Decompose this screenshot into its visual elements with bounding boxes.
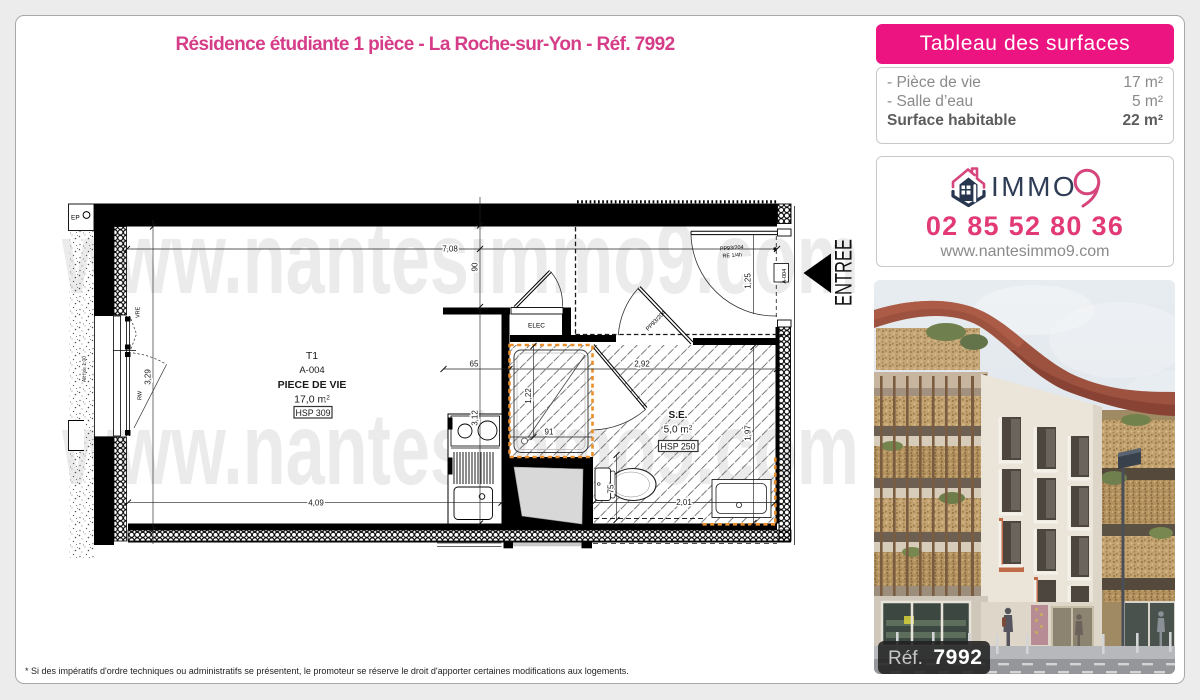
svg-text:1,22: 1,22 xyxy=(524,388,533,404)
svg-text:ENTREE: ENTREE xyxy=(830,239,857,306)
svg-text:2,01: 2,01 xyxy=(676,498,692,507)
svg-text:HSP 250: HSP 250 xyxy=(660,442,695,452)
svg-text:S.E.: S.E. xyxy=(669,410,688,421)
svg-text:Alt fixe 1,00: Alt fixe 1,00 xyxy=(82,356,88,382)
svg-text:RW: RW xyxy=(138,390,144,400)
svg-text:VRE: VRE xyxy=(136,306,142,318)
svg-text:A-004: A-004 xyxy=(299,365,324,376)
svg-text:IMMO: IMMO xyxy=(991,171,1077,202)
svg-text:91: 91 xyxy=(545,428,554,437)
svg-text:HSP 309: HSP 309 xyxy=(295,408,330,418)
svg-text:5,0 m2: 5,0 m2 xyxy=(664,425,693,436)
svg-text:4,09: 4,09 xyxy=(308,499,324,508)
svg-text:2,92: 2,92 xyxy=(634,360,650,369)
svg-text:RE 1/4h: RE 1/4h xyxy=(722,252,742,259)
svg-text:ELEC: ELEC xyxy=(528,323,545,330)
svg-text:7,08: 7,08 xyxy=(442,245,458,254)
svg-text:1,97: 1,97 xyxy=(744,425,753,441)
svg-text:A-004: A-004 xyxy=(782,269,788,284)
svg-text:90: 90 xyxy=(471,262,480,271)
svg-text:EP: EP xyxy=(71,215,80,222)
svg-text:1,25: 1,25 xyxy=(744,273,753,289)
svg-text:3,12: 3,12 xyxy=(471,410,480,426)
svg-text:75: 75 xyxy=(607,484,616,493)
svg-text:T1: T1 xyxy=(306,350,318,362)
svg-text:3,29: 3,29 xyxy=(144,369,153,385)
svg-text:17,0 m2: 17,0 m2 xyxy=(294,394,330,406)
svg-text:PP93/204: PP93/204 xyxy=(720,245,744,253)
svg-text:65: 65 xyxy=(470,360,479,369)
svg-text:PIECE DE VIE: PIECE DE VIE xyxy=(278,379,347,391)
svg-text:PP93/204: PP93/204 xyxy=(645,310,668,333)
